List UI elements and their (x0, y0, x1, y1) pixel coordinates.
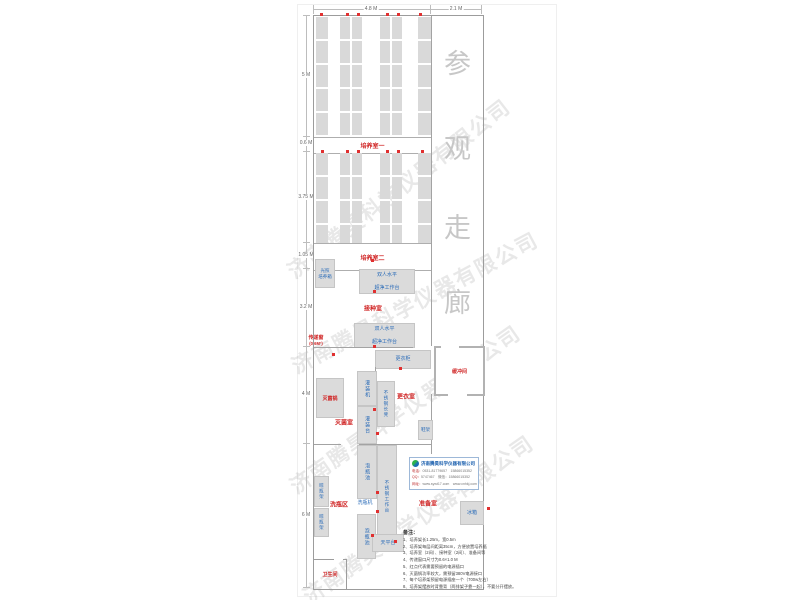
company-title-block: 济南腾昊科学仪器有限公司 电话：0531-81779657 1586601535… (409, 457, 479, 490)
power-outlet-dot (371, 534, 374, 537)
power-outlet-dot (394, 540, 397, 543)
dimension-tick (303, 242, 310, 243)
power-outlet-dot (421, 150, 424, 153)
power-outlet-dot (397, 150, 400, 153)
culture-rack (316, 17, 328, 137)
power-outlet-dot (419, 13, 422, 16)
note-item: 5、红点代表需要预留的电源插口 (403, 564, 505, 571)
room-label-sterilization: 灭菌室 (335, 418, 353, 427)
culture-rack (316, 153, 328, 243)
room-label-changing: 更衣室 (397, 392, 415, 401)
clean-bench-line1: 双人水平 (372, 326, 397, 332)
dimension-tick (303, 151, 310, 152)
filling-table-label: 灌装台 (364, 416, 370, 434)
drying-rack-label: 晾瓶架 (319, 483, 325, 500)
wardrobe-label: 更衣柜 (395, 356, 410, 362)
power-outlet-dot (487, 507, 490, 510)
culture-rack (352, 17, 362, 137)
dimension-tick (303, 587, 310, 588)
soak-pool-label: 泡瓶池 (364, 463, 370, 481)
power-outlet-dot (371, 259, 374, 262)
notes-title: 备注： (403, 529, 505, 536)
power-outlet-dot (373, 290, 376, 293)
shoe-rack: 鞋架 (418, 420, 433, 440)
culture-rack (352, 153, 362, 243)
company-web: 网址：www.sywt17.com www.cnhkj.com (412, 482, 476, 487)
power-outlet-dot (376, 510, 379, 513)
power-outlet-dot (321, 150, 324, 153)
door-gap (334, 559, 343, 560)
power-outlet-dot (346, 150, 349, 153)
stainless-worktable: 不锈钢工作台 (377, 445, 397, 548)
note-item: 8、培养架摆放时背靠背（两排架子靠一起），不要分开摆放。 (403, 584, 505, 591)
power-outlet-dot (357, 150, 360, 153)
stainless-bench-label: 不锈钢长凳 (383, 390, 389, 418)
bottle-washer-label: 洗瓶机 (357, 500, 372, 506)
soak-pool: 泡瓶池 (357, 445, 377, 499)
dimension-tick (313, 5, 314, 14)
power-outlet-dot (386, 150, 389, 153)
room-label-culture1: 培养室一 (360, 141, 384, 150)
soak-pool-label: 泡瓶池 (363, 528, 369, 546)
dimension-tick (303, 346, 310, 347)
note-item: 1、培养架长1.25m，宽0.5m (403, 537, 505, 544)
room-label-prep: 准备室 (419, 499, 437, 508)
company-web-label: 网址： (412, 482, 423, 486)
culture-rack (340, 153, 350, 243)
plan-outline: 培养室一 培养室二 光照 培养箱 双人水平 超净工作台 接种室 双 (313, 15, 484, 590)
power-outlet-dot (376, 491, 379, 494)
drying-rack: 晾瓶架 (314, 476, 329, 507)
culture-rack (418, 153, 431, 243)
dimension-label-width-main: 4.8 M (364, 6, 379, 12)
dimension-label: 5 M (301, 72, 311, 78)
clean-bench-label: 双人水平 超净工作台 (374, 266, 399, 297)
light-incubator: 光照 培养箱 (315, 259, 335, 288)
clean-bench: 双人水平 超净工作台 (359, 269, 415, 294)
company-qq-label: QQ： (412, 475, 421, 479)
clean-bench: 双人水平 超净工作台 (354, 323, 415, 348)
dimension-tick (430, 5, 431, 14)
clean-bench-line2: 超净工作台 (372, 339, 397, 345)
power-outlet-dot (397, 13, 400, 16)
door-gap (441, 346, 459, 348)
fridge: 冰箱 (460, 501, 484, 525)
wardrobe: 更衣柜 (375, 350, 431, 369)
floorplan-drawing: 济南腾昊科学仪器有限公司 济南腾昊科学仪器有限公司 济南腾昊科学仪器有限公司 济… (0, 0, 800, 600)
dimension-tick (303, 268, 310, 269)
clean-bench-line1: 双人水平 (374, 272, 399, 278)
room-label-buffer: 缓冲间 (452, 368, 467, 375)
dimension-tick (303, 15, 310, 16)
power-outlet-dot (346, 13, 349, 16)
dimension-label: 0.6 M (299, 140, 314, 146)
power-outlet-dot (320, 13, 323, 16)
balance-table: 天平台 (372, 534, 404, 552)
filling-machine: 灌装机 (357, 371, 377, 406)
light-incubator-label: 光照 培养箱 (318, 268, 332, 279)
power-outlet-dot (373, 408, 376, 411)
stainless-worktable-label: 不锈钢工作台 (384, 480, 390, 513)
shoe-rack-label: 鞋架 (421, 427, 430, 433)
filling-machine-label: 灌装机 (364, 380, 370, 398)
sterilizer: 灭菌锅 (316, 378, 344, 418)
dimension-label: 6 M (301, 512, 311, 518)
culture-rack (392, 17, 402, 137)
dimension-label-width-corridor: 2.1 M (449, 6, 464, 12)
clean-bench-line2: 超净工作台 (374, 285, 399, 291)
culture-rack (392, 153, 402, 243)
company-phone: 电话：0531-81779657 15866015352 (412, 469, 476, 474)
company-web-value: www.sywt17.com www.cnhkj.com (423, 482, 477, 486)
culture-rack (380, 17, 390, 137)
company-name: 济南腾昊科学仪器有限公司 (421, 461, 475, 467)
note-item: 4、传递窗口尺寸为0.6×1.0 M (403, 557, 505, 564)
company-qq: QQ：5747467 微信：15866015352 (412, 475, 476, 480)
room-label-toilet: 卫生间 (322, 571, 337, 578)
drying-rack-label: 晾瓶架 (319, 514, 325, 531)
wall-corridor (431, 16, 432, 346)
door-gap (448, 394, 467, 396)
company-phone-value: 0531-81779657 15866015352 (423, 469, 472, 473)
stainless-bench: 不锈钢长凳 (377, 381, 395, 427)
room-band-culture1: 培养室一 (314, 137, 431, 154)
dimension-label: 3.2 M (299, 304, 314, 310)
sterilizer-label: 灭菌锅 (322, 395, 337, 402)
company-logo-icon (412, 460, 419, 467)
room-label-washing: 洗瓶区 (330, 500, 348, 509)
drying-rack: 晾瓶架 (314, 508, 329, 537)
culture-rack (340, 17, 350, 137)
culture-rack (380, 153, 390, 243)
dimension-tick (481, 5, 482, 14)
culture-rack (418, 17, 431, 137)
buffer-room: 缓冲间 (434, 346, 485, 396)
fridge-label: 冰箱 (467, 510, 477, 516)
power-outlet-dot (357, 13, 360, 16)
company-phone-label: 电话： (412, 469, 423, 473)
dimension-label: 4 M (301, 391, 311, 397)
company-qq-value: 5747467 微信：15866015352 (421, 475, 470, 479)
dimension-tick (303, 443, 310, 444)
toilet-room: 卫生间 (314, 559, 347, 589)
power-outlet-dot (373, 345, 376, 348)
filling-table: 灌装台 (357, 406, 377, 444)
power-outlet-dot (386, 13, 389, 16)
wall-inoculation-south (314, 347, 413, 348)
notes-block: 备注： 1、培养架长1.25m，宽0.5m 2、培养架每层间距离35cm，方便放… (403, 529, 505, 591)
wall-prep-north (314, 444, 341, 445)
power-outlet-dot (332, 353, 335, 356)
power-outlet-dot (376, 432, 379, 435)
dimension-tick (303, 136, 310, 137)
power-outlet-dot (399, 367, 402, 370)
dimension-line-left (306, 15, 307, 588)
room-label-inoculation: 接种室 (364, 304, 382, 313)
